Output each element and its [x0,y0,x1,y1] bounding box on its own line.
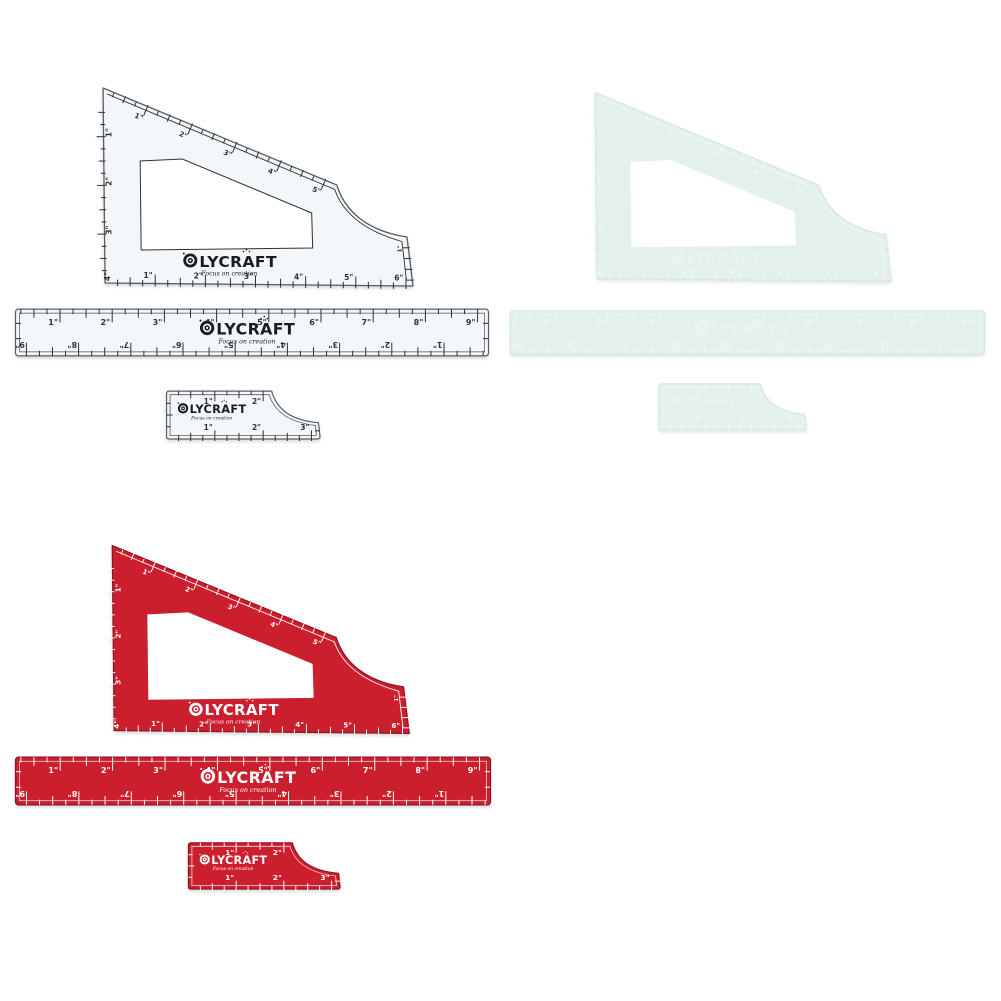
svg-text:6": 6" [172,340,182,349]
svg-text:1": 1" [596,131,605,140]
svg-text:4": 4" [595,268,604,277]
svg-text:1": 1" [397,246,403,253]
svg-text:6": 6" [805,319,815,328]
svg-text:3": 3" [824,340,834,349]
svg-text:5": 5" [344,273,353,282]
svg-text:1": 1" [113,583,122,592]
svg-text:2": 2" [596,319,606,328]
svg-text:2": 2" [273,873,282,882]
svg-text:1": 1" [144,271,153,280]
svg-text:1": 1" [394,695,400,702]
svg-text:1": 1" [876,243,882,250]
svg-text:1": 1" [204,423,213,432]
svg-text:1": 1" [543,319,553,328]
svg-text:6": 6" [309,318,319,327]
svg-text:5": 5" [343,721,352,730]
svg-text:9": 9" [468,765,478,775]
svg-text:3": 3" [330,789,340,799]
svg-text:1": 1" [433,340,443,349]
svg-text:LYCRAFT: LYCRAFT [199,253,277,271]
svg-text:2": 2" [113,630,122,639]
svg-text:4": 4" [778,268,787,277]
svg-text:4": 4" [112,720,121,729]
svg-text:3": 3" [105,225,114,234]
curve-ruler-red: 1"2"1"2"3"LYCRAFTFocus on creation [179,836,344,891]
svg-text:3": 3" [300,423,309,432]
svg-text:8": 8" [415,765,425,775]
svg-text:6": 6" [667,340,677,349]
svg-text:6": 6" [394,273,403,282]
svg-text:7": 7" [615,340,625,349]
svg-text:LYCRAFT: LYCRAFT [211,854,267,867]
svg-text:Focus on creation: Focus on creation [217,337,275,345]
svg-text:2": 2" [101,765,111,775]
svg-text:2": 2" [876,340,886,349]
svg-text:4": 4" [276,340,286,349]
svg-text:3": 3" [153,318,163,327]
triangle-ruler-white: 1"2"3"4"1"2"3"4"5"6"1"2"3"4"5"1"LYCRAFTF… [84,79,420,294]
svg-text:LYCRAFT: LYCRAFT [216,319,295,338]
svg-text:5": 5" [826,269,835,278]
svg-text:2": 2" [741,389,750,398]
svg-text:3": 3" [787,414,796,423]
svg-text:1": 1" [48,318,58,327]
svg-text:7": 7" [363,765,373,775]
svg-text:8": 8" [910,319,920,328]
svg-text:Focus on creation: Focus on creation [200,271,257,278]
svg-text:LYCRAFT: LYCRAFT [687,250,762,267]
curve-ruler-white: 1"2"1"2"3"LYCRAFTFocus on creation [157,384,324,441]
svg-text:2": 2" [273,848,282,857]
svg-text:8": 8" [67,340,77,349]
svg-text:4": 4" [277,789,287,799]
svg-text:LYCRAFT: LYCRAFT [712,321,791,338]
svg-text:2": 2" [381,340,391,349]
svg-text:7": 7" [120,340,130,349]
svg-text:6": 6" [391,721,400,730]
triangle-ruler-red: 1"2"3"4"1"2"3"4"5"6"1"2"3"4"5"1"LYCRAFTF… [94,537,416,741]
svg-text:1": 1" [48,765,58,775]
svg-text:2": 2" [741,414,750,423]
svg-text:6": 6" [873,269,882,278]
svg-text:9": 9" [962,319,972,328]
long-ruler-white: 1"9"2"8"3"7"4"6"5"5"6"4"7"3"8"2"9"1"LYCR… [14,304,490,361]
svg-text:1": 1" [695,414,704,423]
svg-text:2": 2" [382,789,392,799]
svg-text:8": 8" [68,789,78,799]
svg-text:1": 1" [929,340,939,349]
svg-text:9": 9" [466,318,476,327]
svg-text:Focus on creation: Focus on creation [713,338,771,345]
svg-text:2": 2" [100,318,110,327]
svg-text:1": 1" [105,128,114,137]
long-ruler-red: 1"9"2"8"3"7"4"6"5"5"6"4"7"3"8"2"9"1"LYCR… [14,752,492,810]
svg-text:Focus on creation: Focus on creation [688,267,743,273]
svg-text:6": 6" [172,789,182,799]
svg-text:9": 9" [15,340,25,349]
svg-text:1": 1" [435,789,445,799]
svg-text:4": 4" [772,340,782,349]
svg-text:1": 1" [634,267,643,276]
svg-text:Focus on creation: Focus on creation [206,719,261,725]
product-photo: 1"2"3"4"1"2"3"4"5"6"1"2"3"4"5"1"LYCRAFTF… [0,0,1001,1001]
triangle-ruler-mint: 1"2"3"4"1"2"3"4"5"6"1"2"3"4"5"1"LYCRAFTF… [577,84,898,289]
svg-text:4": 4" [294,272,303,281]
svg-text:LYCRAFT: LYCRAFT [681,395,736,408]
svg-text:2": 2" [252,397,261,406]
svg-text:2": 2" [596,177,605,186]
svg-text:LYCRAFT: LYCRAFT [217,768,296,787]
svg-text:Focus on creation: Focus on creation [212,866,254,872]
svg-text:7": 7" [857,319,867,328]
svg-text:9": 9" [510,340,520,349]
svg-text:3": 3" [648,319,658,328]
long-ruler-mint: 1"9"2"8"3"7"4"6"5"5"6"4"7"3"8"2"9"1"LYCR… [509,306,986,359]
svg-text:Focus on creation: Focus on creation [190,415,232,421]
svg-text:2": 2" [252,423,261,432]
svg-text:1": 1" [151,719,160,728]
svg-text:7": 7" [361,318,371,327]
svg-text:Focus on creation: Focus on creation [218,786,276,794]
svg-text:LYCRAFT: LYCRAFT [205,702,280,719]
svg-text:7": 7" [120,789,130,799]
svg-text:4": 4" [103,272,112,281]
svg-text:6": 6" [310,765,320,775]
svg-text:3": 3" [113,676,122,685]
svg-text:4": 4" [295,720,304,729]
curve-ruler-mint: 1"2"1"2"3"LYCRAFTFocus on creation [650,377,810,432]
svg-text:3": 3" [321,873,330,882]
svg-text:3": 3" [328,340,338,349]
svg-text:3": 3" [153,765,163,775]
svg-text:1": 1" [225,873,234,882]
svg-text:Focus on creation: Focus on creation [682,408,722,413]
svg-text:3": 3" [596,223,605,232]
svg-text:8": 8" [414,318,424,327]
svg-text:8": 8" [562,340,572,349]
svg-text:9": 9" [15,789,25,799]
svg-text:2": 2" [105,177,114,186]
svg-text:LYCRAFT: LYCRAFT [190,402,247,416]
